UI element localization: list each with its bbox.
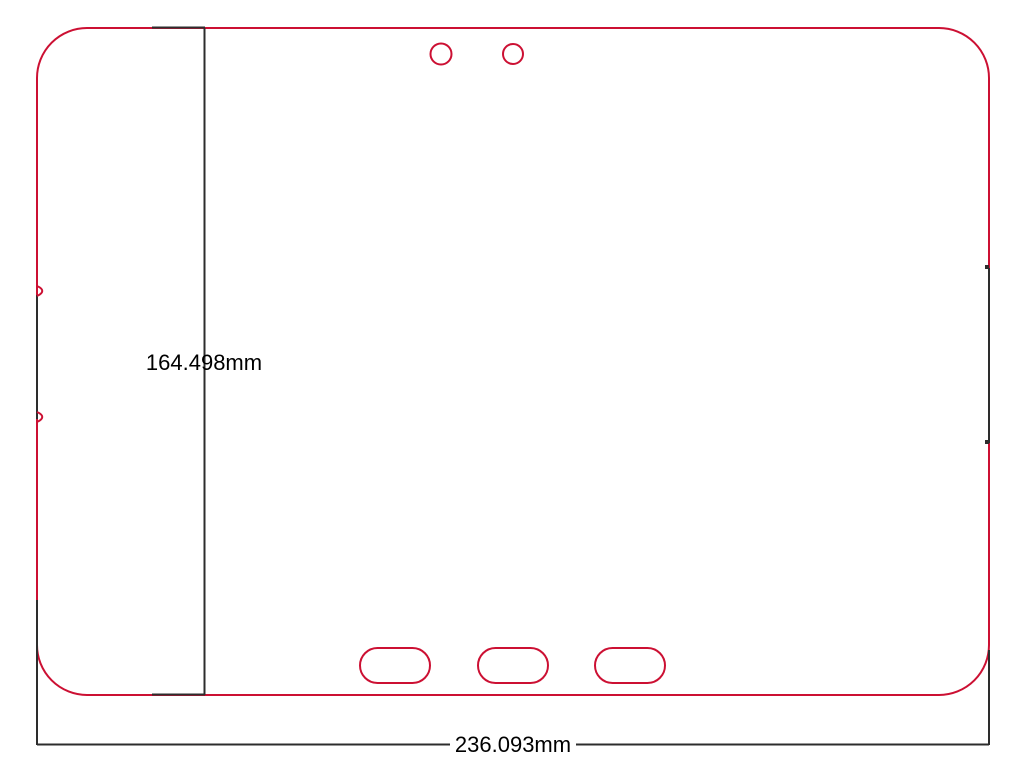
technical-drawing-canvas: 164.498mm 236.093mm xyxy=(0,0,1024,768)
right-edge-junction-mark-bottom xyxy=(985,440,989,444)
bottom-slot-left xyxy=(360,648,430,683)
bottom-slot-center xyxy=(478,648,548,683)
right-edge-junction-mark-top xyxy=(985,265,989,269)
drawing-svg: 164.498mm 236.093mm xyxy=(0,0,1024,768)
bottom-slot-right xyxy=(595,648,665,683)
camera-hole-right xyxy=(503,44,523,64)
width-dimension-label: 236.093mm xyxy=(455,732,571,757)
height-dimension-label: 164.498mm xyxy=(146,350,262,375)
camera-hole-left xyxy=(431,44,452,65)
